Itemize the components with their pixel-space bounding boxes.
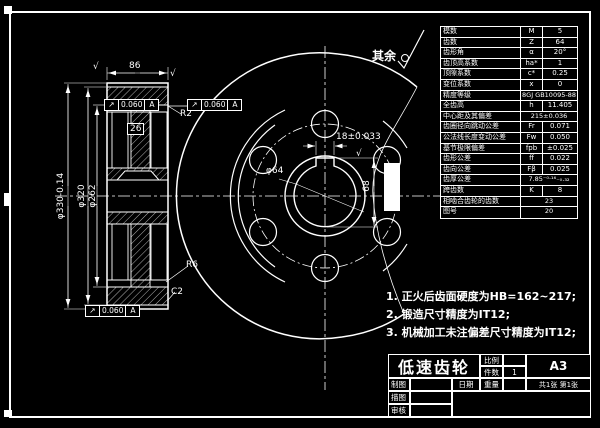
parameter-value: 0.022	[543, 154, 577, 164]
parameter-value: 5	[543, 27, 577, 37]
note-line: 1. 正火后齿面硬度为HB=162~217;	[386, 288, 576, 306]
parameter-label: 齿数	[441, 38, 521, 48]
parameter-value: 0.071	[543, 122, 577, 132]
drawing-title: 低速齿轮	[388, 354, 480, 378]
parameter-value: 20	[521, 207, 577, 218]
dimension-label: √	[170, 69, 176, 79]
checked-by-label: 审核	[388, 404, 410, 417]
dimension-label: C2	[171, 287, 183, 297]
company-cell	[452, 391, 591, 417]
dimension-label: 18±0.033	[336, 132, 381, 142]
geometric-tolerance-frame: ↗ 0.060 A	[105, 99, 159, 111]
scale-value	[503, 354, 526, 366]
parameter-label: 模数	[441, 27, 521, 37]
parameter-label: 精度等级	[441, 91, 521, 101]
parameter-value: ±0.025	[543, 144, 577, 154]
datum-letter: A	[227, 99, 242, 111]
surface-note-label: 其余	[372, 47, 396, 64]
parameter-symbol: Fβ	[521, 165, 543, 175]
drawn-by-value	[410, 378, 452, 391]
parameter-row: 全齿高 h 11.405	[441, 101, 577, 112]
parameter-row: 齿圈径向跳动公差 Fr 0.071	[441, 122, 577, 133]
tolerance-value: 0.060	[99, 305, 126, 317]
parameter-label: 齿厚公差	[441, 175, 521, 185]
parameter-value: 23	[521, 197, 577, 207]
parameter-label: 中心距及其偏差	[441, 112, 521, 122]
date-label: 日期	[452, 378, 480, 391]
quantity-label: 件数	[480, 366, 503, 378]
dimension-label: φ320	[77, 184, 87, 207]
cad-drawing-sheet: 其余 86 26 R2 R6 C2 φ330-0.14 φ320 φ262 18…	[0, 0, 600, 428]
parameter-label: 相啮合齿轮的齿数	[441, 197, 521, 207]
parameter-value: 0.25	[543, 69, 577, 79]
parameter-symbol: ha*	[521, 59, 543, 69]
dimension-label: √	[93, 62, 99, 72]
parameter-symbol: M	[521, 27, 543, 37]
weight-value	[503, 378, 526, 391]
parameter-label: 齿形公差	[441, 154, 521, 164]
dimension-label: 86	[129, 61, 140, 71]
gear-parameter-table: 模数 M 5 齿数 Z 64 齿形角 α 20° 齿顶高系数 ha* 1	[440, 26, 578, 219]
parameter-row: 相啮合齿轮的齿数 23	[441, 197, 577, 208]
parameter-row: 齿形公差 ff 0.022	[441, 154, 577, 165]
parameter-row: 公法线长度变动公差 Fw 0.050	[441, 133, 577, 144]
parameter-row: 变位系数 x 0	[441, 80, 577, 91]
dimension-label: R6	[186, 260, 198, 270]
parameter-value: 0.050	[543, 133, 577, 143]
geometric-tolerance-frame: ↗ 0.060 A	[86, 305, 140, 317]
parameter-row: 跨齿数 K 8	[441, 186, 577, 197]
dimension-label: φ262	[88, 184, 98, 207]
parameter-symbol: Z	[521, 38, 543, 48]
parameter-value: 215±0.036	[521, 112, 577, 122]
parameter-row: 齿顶高系数 ha* 1	[441, 59, 577, 70]
technical-notes: 1. 正火后齿面硬度为HB=162~217; 2. 锻造尺寸精度为IT12; 3…	[386, 288, 576, 342]
parameter-symbol: c*	[521, 69, 543, 79]
parameter-symbol: α	[521, 48, 543, 58]
weight-label: 重量	[480, 378, 503, 391]
sheet-count-note: 共1张 第1张	[526, 378, 591, 391]
parameter-value: 0.025	[543, 165, 577, 175]
parameter-label: 全齿高	[441, 101, 521, 111]
datum-letter: A	[125, 305, 140, 317]
parameter-label: 齿顶高系数	[441, 59, 521, 69]
drawn-by-label: 制图	[388, 378, 410, 391]
parameter-symbol: fpb	[521, 144, 543, 154]
parameter-value: 7.85⁻⁰·¹⁶₋₀.₃₂	[521, 175, 577, 185]
parameter-row: 齿厚公差 7.85⁻⁰·¹⁶₋₀.₃₂	[441, 175, 577, 186]
parameter-label: 图号	[441, 207, 521, 218]
parameter-symbol: h	[521, 101, 543, 111]
parameter-value: 8GJ GB10095-88	[521, 91, 577, 101]
datum-letter: A	[144, 99, 159, 111]
dimension-label: φ64	[266, 166, 283, 176]
parameter-row: 齿形角 α 20°	[441, 48, 577, 59]
parameter-row: 齿数 Z 64	[441, 38, 577, 49]
parameter-row: 中心距及其偏差 215±0.036	[441, 112, 577, 123]
parameter-symbol: Fr	[521, 122, 543, 132]
parameter-row: 齿向公差 Fβ 0.025	[441, 165, 577, 176]
parameter-label: 齿向公差	[441, 165, 521, 175]
traced-by-label: 描图	[388, 391, 410, 404]
parameter-symbol: ff	[521, 154, 543, 164]
parameter-label: 变位系数	[441, 80, 521, 90]
runout-symbol-icon: ↗	[104, 99, 119, 111]
parameter-label: 公法线长度变动公差	[441, 133, 521, 143]
parameter-row: 精度等级 8GJ GB10095-88	[441, 91, 577, 102]
parameter-value: 1	[543, 59, 577, 69]
dimension-label: √	[356, 149, 362, 159]
parameter-label: 顶隙系数	[441, 69, 521, 79]
checked-by-value	[410, 404, 452, 417]
parameter-value: 0	[543, 80, 577, 90]
parameter-row: 图号 20	[441, 207, 577, 218]
keyway-local-section	[384, 163, 400, 211]
tolerance-value: 0.060	[201, 99, 228, 111]
parameter-label: 齿形角	[441, 48, 521, 58]
parameter-value: 20°	[543, 48, 577, 58]
scale-label: 比例	[480, 354, 503, 366]
note-line: 3. 机械加工未注偏差尺寸精度为IT12;	[386, 324, 576, 342]
parameter-value: 8	[543, 186, 577, 196]
paper-size: A3	[526, 354, 591, 378]
parameter-value: 11.405	[543, 101, 577, 111]
runout-symbol-icon: ↗	[85, 305, 100, 317]
dimension-label: φ330-0.14	[56, 173, 66, 219]
parameter-value: 64	[543, 38, 577, 48]
parameter-symbol: K	[521, 186, 543, 196]
dimension-label: 26	[127, 123, 144, 135]
parameter-label: 跨齿数	[441, 186, 521, 196]
parameter-symbol: Fw	[521, 133, 543, 143]
quantity-value: 1	[503, 366, 526, 378]
parameter-row: 顶隙系数 c* 0.25	[441, 69, 577, 80]
note-line: 2. 锻造尺寸精度为IT12;	[386, 306, 576, 324]
tolerance-value: 0.060	[118, 99, 145, 111]
parameter-label: 基节极限偏差	[441, 144, 521, 154]
traced-by-value	[410, 391, 452, 404]
parameter-label: 齿圈径向跳动公差	[441, 122, 521, 132]
geometric-tolerance-frame: ↗ 0.060 A	[188, 99, 242, 111]
runout-symbol-icon: ↗	[187, 99, 202, 111]
parameter-row: 基节极限偏差 fpb ±0.025	[441, 144, 577, 155]
parameter-row: 模数 M 5	[441, 27, 577, 38]
dimension-label: 68	[362, 180, 372, 191]
parameter-symbol: x	[521, 80, 543, 90]
roughness-check-icon	[398, 30, 424, 68]
